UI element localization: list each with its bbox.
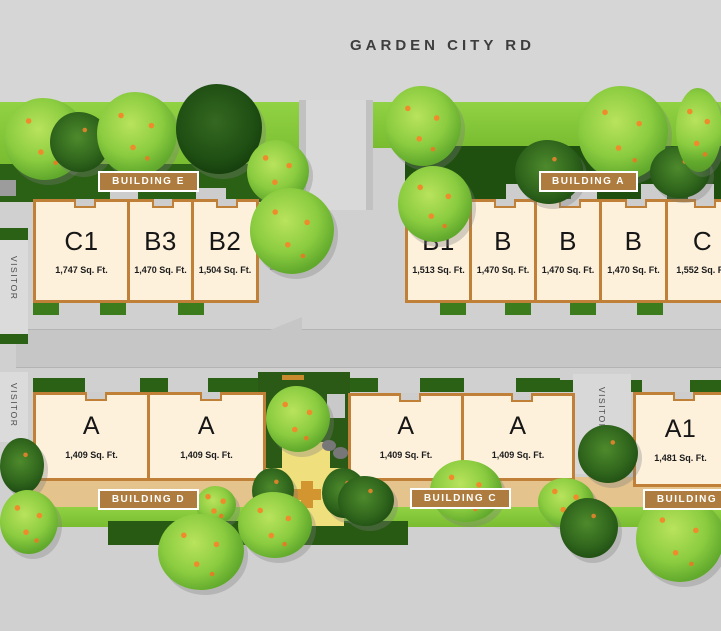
dark-tree-icon <box>338 476 394 526</box>
entry-notch <box>625 199 647 208</box>
internal-road <box>16 329 721 368</box>
hedge-strip <box>516 378 560 392</box>
hedge-strip <box>140 378 168 392</box>
dark-tree-icon <box>560 498 618 558</box>
hedge-strip <box>0 334 28 344</box>
bench <box>282 375 304 380</box>
unit-area: 1,470 Sq. Ft. <box>134 265 187 275</box>
entry-notch <box>673 392 695 401</box>
tree-icon <box>0 490 58 554</box>
building-a-banner: BUILDING A <box>539 171 638 192</box>
hedge-tuft <box>33 303 59 315</box>
unit-area: 1,552 Sq. Ft. <box>676 265 721 275</box>
dark-tree-icon <box>578 425 638 483</box>
building-b-banner: BUILDING B <box>643 489 721 510</box>
unit-a-2[interactable]: A 1,409 Sq. Ft. <box>147 392 266 481</box>
entry-notch <box>399 393 421 402</box>
site-plan: GARDEN CITY RD VISITOR VISITOR VISITOR <box>0 0 721 631</box>
hedge-tuft <box>505 303 531 315</box>
entry-notch <box>216 199 238 208</box>
unit-a-1[interactable]: A 1,409 Sq. Ft. <box>33 392 150 481</box>
rock <box>333 447 348 459</box>
unit-area: 1,513 Sq. Ft. <box>412 265 465 275</box>
unit-a1[interactable]: A1 1,481 Sq. Ft. <box>633 392 721 487</box>
unit-name: B2 <box>209 228 242 254</box>
unit-name: A <box>198 414 215 439</box>
entry-notch <box>494 199 516 208</box>
entry-notch <box>74 199 96 208</box>
unit-b2[interactable]: B2 1,504 Sq. Ft. <box>191 199 259 303</box>
unit-name: A <box>397 414 414 439</box>
entry-notch <box>200 392 222 401</box>
unit-name: A <box>509 414 526 439</box>
unit-area: 1,747 Sq. Ft. <box>55 265 108 275</box>
hedge-strip <box>33 378 85 392</box>
tree-icon <box>266 386 330 452</box>
unit-name: B <box>625 228 643 254</box>
unit-area: 1,470 Sq. Ft. <box>477 265 530 275</box>
unit-area: 1,470 Sq. Ft. <box>542 265 595 275</box>
unit-name: B3 <box>144 228 177 254</box>
tree-icon <box>158 514 244 590</box>
entry-notch <box>85 392 107 401</box>
hedge-tuft <box>100 303 126 315</box>
unit-area: 1,409 Sq. Ft. <box>492 450 545 460</box>
road-label-garden-city-rd: GARDEN CITY RD <box>350 37 535 54</box>
visitor-label: VISITOR <box>9 256 19 300</box>
dark-tree-icon <box>0 438 44 494</box>
hedge-tuft <box>178 303 204 315</box>
unit-name: A <box>83 414 100 439</box>
unit-b3[interactable]: B3 1,470 Sq. Ft. <box>127 199 194 303</box>
utility-pad <box>0 180 16 196</box>
building-e-banner: BUILDING E <box>98 171 199 192</box>
hedge-strip <box>420 378 464 392</box>
unit-name: B <box>559 228 577 254</box>
unit-area: 1,409 Sq. Ft. <box>65 450 118 460</box>
hedge-strip <box>0 228 28 240</box>
unit-name: B <box>494 228 512 254</box>
hedge-tuft <box>440 303 466 315</box>
tree-icon <box>250 188 334 274</box>
building-d-banner: BUILDING D <box>98 489 199 510</box>
building-c-banner: BUILDING C <box>410 488 511 509</box>
hedge-tuft <box>570 303 596 315</box>
visitor-label: VISITOR <box>9 383 19 427</box>
unit-name: A1 <box>665 417 697 442</box>
unit-area: 1,470 Sq. Ft. <box>607 265 660 275</box>
hedge-strip <box>690 380 721 392</box>
unit-b-3[interactable]: B 1,470 Sq. Ft. <box>534 199 602 303</box>
hedge-tuft <box>637 303 663 315</box>
unit-b-4[interactable]: B 1,470 Sq. Ft. <box>599 199 668 303</box>
tree-icon <box>97 92 177 176</box>
unit-name: C <box>693 228 712 254</box>
unit-c[interactable]: C 1,552 Sq. Ft. <box>665 199 721 303</box>
unit-area: 1,409 Sq. Ft. <box>180 450 233 460</box>
unit-area: 1,504 Sq. Ft. <box>199 265 252 275</box>
unit-area: 1,481 Sq. Ft. <box>654 453 707 463</box>
unit-b-2[interactable]: B 1,470 Sq. Ft. <box>469 199 537 303</box>
entry-notch <box>694 199 716 208</box>
unit-name: C1 <box>64 228 98 254</box>
unit-c1[interactable]: C1 1,747 Sq. Ft. <box>33 199 130 303</box>
tree-icon <box>238 492 312 558</box>
entry-notch <box>511 393 533 402</box>
hedge-strip <box>346 378 378 392</box>
tree-icon <box>385 86 461 166</box>
tree-icon <box>398 166 472 242</box>
unit-area: 1,409 Sq. Ft. <box>380 450 433 460</box>
driveway-edge <box>366 100 373 210</box>
entry-notch <box>152 199 174 208</box>
tree-icon <box>676 88 721 172</box>
